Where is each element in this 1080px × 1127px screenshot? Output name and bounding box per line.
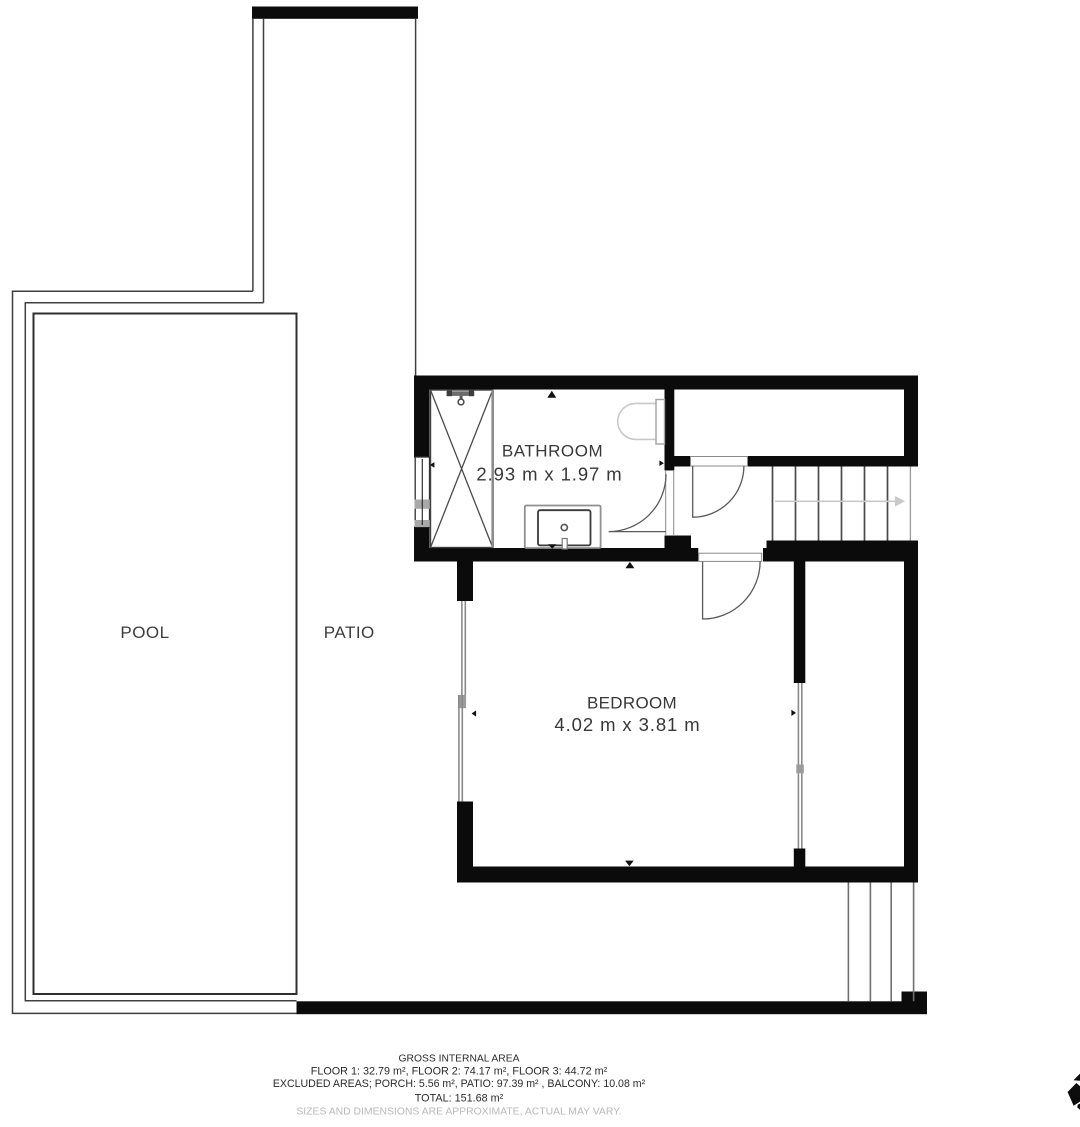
svg-text:EXCLUDED AREAS; PORCH: 5.56 m²: EXCLUDED AREAS; PORCH: 5.56 m², PATIO: 9…	[273, 1078, 646, 1090]
svg-text:FLOOR 1: 32.79 m², FLOOR 2: 74: FLOOR 1: 32.79 m², FLOOR 2: 74.17 m², FL…	[311, 1065, 608, 1077]
svg-text:SIZES AND DIMENSIONS ARE APPRO: SIZES AND DIMENSIONS ARE APPROXIMATE, AC…	[296, 1106, 621, 1117]
svg-text:PATIO: PATIO	[324, 623, 375, 642]
svg-text:4.02 m x 3.81 m: 4.02 m x 3.81 m	[554, 714, 700, 735]
svg-text:2.93 m x 1.97 m: 2.93 m x 1.97 m	[476, 464, 622, 485]
svg-text:POOL: POOL	[120, 623, 169, 642]
svg-text:GROSS INTERNAL AREA: GROSS INTERNAL AREA	[399, 1054, 520, 1065]
svg-text:BEDROOM: BEDROOM	[587, 694, 677, 713]
svg-text:TOTAL: 151.68 m²: TOTAL: 151.68 m²	[415, 1092, 504, 1104]
svg-text:BATHROOM: BATHROOM	[502, 442, 603, 461]
